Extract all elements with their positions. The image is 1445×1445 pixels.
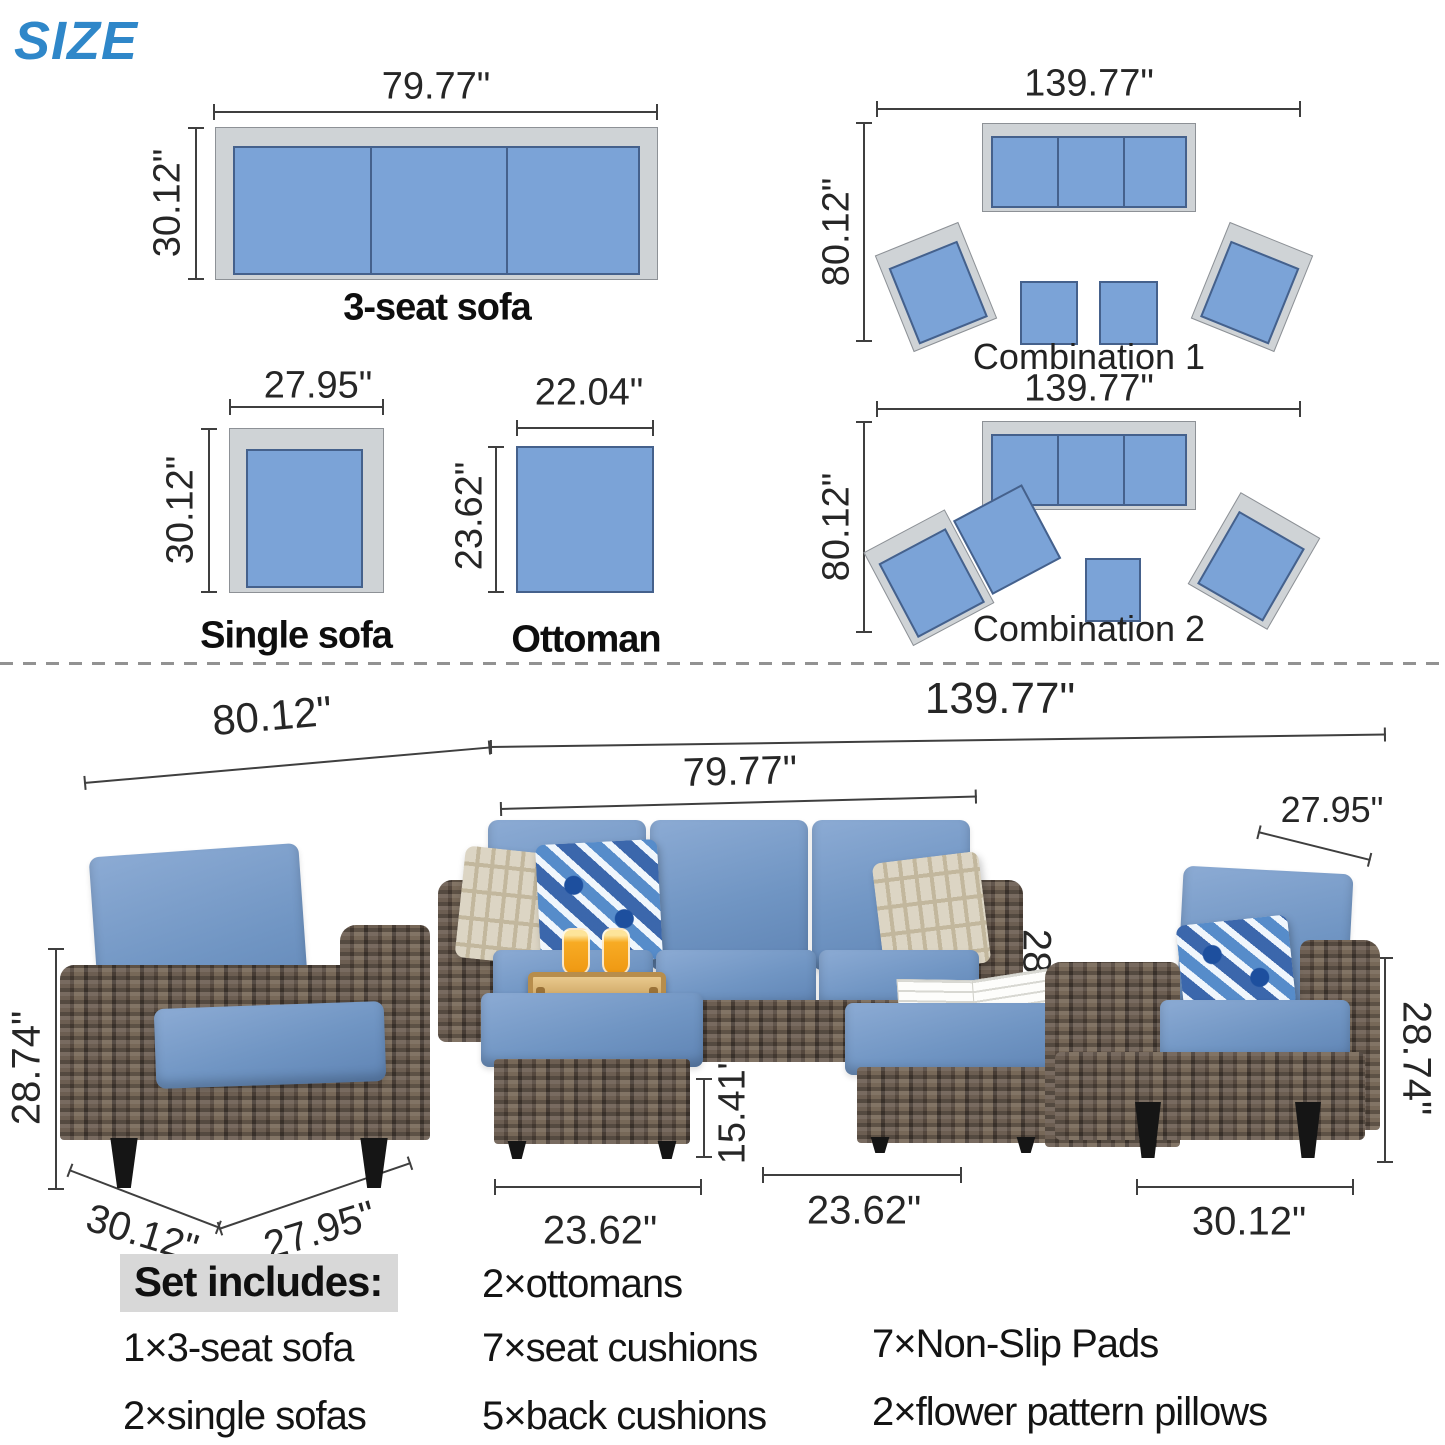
dim-combo1-width: 139.77" <box>1024 63 1154 106</box>
label-threeseat: 3-seat sofa <box>343 287 531 330</box>
combo2-right-chair-seat <box>1197 511 1305 622</box>
dimline-set-width <box>490 733 1386 748</box>
dimline-combo1-depth <box>863 122 865 342</box>
dimline-sofa-depth <box>195 127 197 280</box>
dim-single-depth: 30.12" <box>160 456 203 565</box>
dimline-single-depth <box>208 428 210 593</box>
dim-ottoman-width: 22.04" <box>535 372 644 415</box>
dimline-right-chair-height <box>1384 957 1386 1163</box>
dimline-right-chair-depth <box>1136 1186 1354 1188</box>
ottoman-left <box>478 925 706 1165</box>
left-chair-leg <box>105 1138 143 1188</box>
dimline-single-width <box>229 406 384 408</box>
ottoman-cushion <box>845 1003 1063 1075</box>
set-includes-heading: Set includes: <box>120 1254 398 1312</box>
set-includes-item: 2×flower pattern pillows <box>872 1390 1267 1435</box>
cushion-divider <box>370 148 372 273</box>
dim-combo1-depth: 80.12" <box>816 178 859 287</box>
glass-bowl <box>602 928 630 976</box>
ottoman-topview <box>516 446 654 593</box>
dim-sofa-width-photo: 79.77" <box>682 748 797 796</box>
dim-ottoman-left-width: 23.62" <box>543 1209 657 1254</box>
right-chair <box>1045 852 1380 1164</box>
ottoman-right <box>843 925 1065 1155</box>
combo1-left-chair-seat <box>889 241 988 345</box>
dim-combo2-depth: 80.12" <box>816 473 859 582</box>
set-includes-item: 1×3-seat sofa <box>123 1326 354 1371</box>
dimline-ottoman-left-width <box>494 1186 702 1188</box>
ottoman-base <box>857 1067 1049 1143</box>
section-divider <box>0 662 1445 665</box>
combo2-right-chair <box>1188 492 1321 630</box>
dim-right-chair-height: 28.74" <box>1394 1001 1439 1115</box>
left-chair-seat-cushion <box>154 1001 387 1089</box>
combo1-sofa <box>982 123 1196 212</box>
dim-ottoman-depth: 23.62" <box>449 462 492 571</box>
cushion-divider <box>1057 436 1059 504</box>
label-single: Single sofa <box>200 615 392 658</box>
glass-bowl <box>562 928 590 976</box>
cushion-divider <box>506 148 508 273</box>
dimline-set-depth <box>84 746 491 784</box>
label-combo2: Combination 2 <box>973 608 1205 650</box>
threeseat-cushion-area <box>233 146 640 275</box>
dim-combo2-width: 139.77" <box>1024 368 1154 411</box>
dimline-combo1-width <box>876 108 1301 110</box>
set-includes-item: 7×Non-Slip Pads <box>872 1322 1158 1367</box>
cushion-divider <box>1123 436 1125 504</box>
cushion-divider <box>1123 138 1125 206</box>
dimline-sofa-width-photo <box>500 796 977 810</box>
set-includes-item: 2×ottomans <box>482 1262 682 1307</box>
dim-ottoman-right-width: 23.62" <box>807 1189 921 1234</box>
cushion-divider <box>1057 138 1059 206</box>
size-infographic: SIZE 79.77" 30.12" 3-seat sofa 27.95" 30… <box>0 0 1445 1445</box>
set-includes-item: 7×seat cushions <box>482 1326 757 1371</box>
set-includes-item: 5×back cushions <box>482 1394 766 1439</box>
ottoman-base <box>494 1059 690 1144</box>
dimline-sofa-width <box>213 111 658 113</box>
dim-sofa-depth: 30.12" <box>147 149 190 258</box>
single-topview <box>229 428 384 593</box>
dim-set-depth: 80.12" <box>210 687 334 745</box>
dimline-ottoman-width <box>516 427 654 429</box>
dimline-combo2-depth <box>863 421 865 633</box>
label-ottoman: Ottoman <box>511 619 660 662</box>
combo1-right-chair-seat <box>1200 241 1299 345</box>
combo1-left-chair <box>875 222 997 352</box>
combo1-sofa-cushions <box>991 136 1187 208</box>
single-cushion <box>246 449 363 588</box>
combo1-right-chair <box>1191 222 1313 352</box>
dimline-combo2-width <box>876 408 1301 410</box>
dimline-ottoman-right-width <box>762 1174 962 1176</box>
dim-single-width: 27.95" <box>264 365 373 408</box>
left-chair-leg <box>355 1138 393 1188</box>
right-chair-base <box>1055 1052 1365 1140</box>
ottoman-cushion <box>481 993 703 1067</box>
dimline-left-chair-height <box>55 948 57 1190</box>
dim-right-chair-depth: 30.12" <box>1192 1200 1306 1245</box>
dim-sofa-width: 79.77" <box>382 66 491 109</box>
left-chair <box>60 845 430 1190</box>
dim-left-chair-height: 28.74" <box>5 1011 50 1125</box>
page-title: SIZE <box>14 10 138 72</box>
dim-set-width: 139.77" <box>925 674 1075 724</box>
threeseat-topview <box>215 127 658 280</box>
dim-right-chair-width: 27.95" <box>1281 789 1384 831</box>
set-includes-item: 2×single sofas <box>123 1394 366 1439</box>
dimline-ottoman-depth <box>495 446 497 593</box>
